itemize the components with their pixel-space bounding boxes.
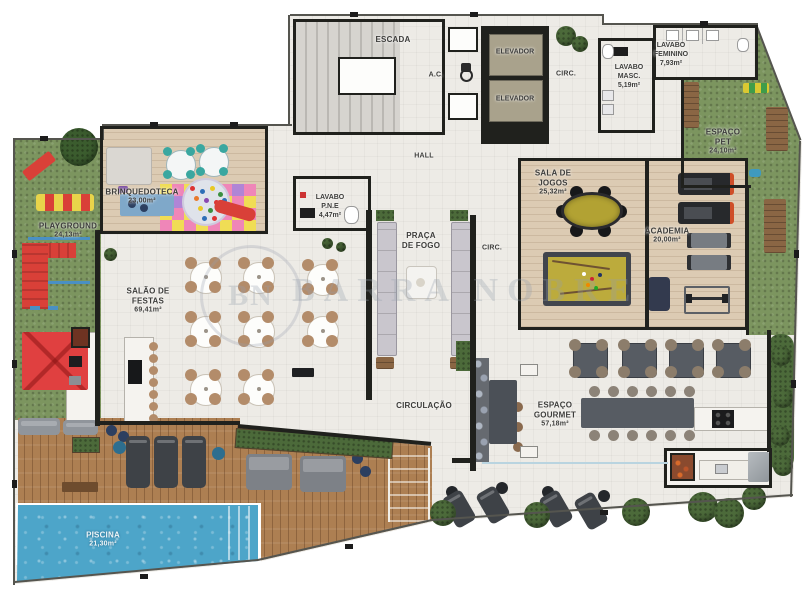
wheelchair-icon <box>460 69 473 82</box>
room-label-sala-de-jogos: SALA DE JOGOS25,32m² <box>535 169 571 198</box>
shrub <box>688 492 718 522</box>
room-label-lavabo-masc: LAVABO MASC.5,19m² <box>615 64 644 90</box>
room-label-praca-de-fogo: PRAÇA DE FOGO <box>402 231 440 251</box>
service-cart <box>520 446 538 458</box>
pool-steps <box>228 506 258 560</box>
deck-sofa <box>18 418 60 435</box>
room-label-elevador-2: ELEVADOR <box>496 96 534 105</box>
column-marker <box>791 380 796 388</box>
column-marker <box>12 360 17 368</box>
kitchenette-sink <box>69 356 82 367</box>
cooktop <box>128 360 142 384</box>
wood-table <box>62 482 98 492</box>
shrub <box>714 498 744 528</box>
gourmet-table <box>716 343 751 378</box>
floor-plan: ESCADA A.C. ELEVADOR ELEVADOR CIRC. HALL… <box>0 0 809 600</box>
room-label-circ-mid: CIRC. <box>482 245 502 254</box>
room-label-academia: ACADEMIA20,00m² <box>645 227 690 246</box>
deck-sofa <box>246 454 292 490</box>
fire-plaza-wall-right <box>470 215 476 471</box>
hedge-tree <box>771 346 791 366</box>
fridge <box>748 452 769 482</box>
room-label-lavabo-pne: LAVABO P.N.E4,47m² <box>316 194 345 220</box>
play-tunnel <box>36 194 94 211</box>
column-marker <box>470 12 478 17</box>
gourmet-wall-right <box>767 330 771 452</box>
tree <box>572 36 588 52</box>
deck-planter <box>72 437 100 453</box>
plant <box>322 238 333 249</box>
pet-toy <box>743 83 769 93</box>
kitchenette-appliance <box>69 376 81 385</box>
sun-lounger <box>154 436 178 488</box>
climbing-frame <box>22 243 48 309</box>
bench <box>292 368 314 377</box>
room-label-piscina: PISCINA21,30m² <box>86 531 120 550</box>
swing-seat <box>48 306 58 310</box>
planter <box>450 210 468 221</box>
gourmet-wall-stub <box>452 458 476 463</box>
sun-lounger <box>182 436 206 488</box>
stairwell-walls <box>293 19 445 135</box>
room-label-ac: A.C. <box>429 72 444 81</box>
bar-stone-wall <box>474 358 489 462</box>
pet-pool <box>749 169 761 177</box>
ac-closet <box>448 27 478 52</box>
gourmet-table <box>669 343 704 378</box>
side-table <box>113 441 126 454</box>
bar-stools <box>149 342 158 351</box>
column-marker <box>600 510 608 515</box>
swing-seat <box>30 306 40 310</box>
garden-bench <box>764 199 786 253</box>
outer-wall <box>290 14 603 16</box>
glass-rail <box>482 462 668 464</box>
hedge-tree <box>770 426 790 446</box>
playroom-walls <box>100 126 268 234</box>
plant <box>104 248 117 261</box>
grill-sink <box>715 464 728 474</box>
planter <box>456 341 470 371</box>
service-cart <box>520 364 538 376</box>
shrub <box>524 502 550 528</box>
room-label-elevador-1: ELEVADOR <box>496 49 534 58</box>
navy-pouf <box>360 466 371 477</box>
room-label-espaco-pet: ESPAÇO PET24,10m² <box>706 128 740 157</box>
column-marker <box>12 250 17 258</box>
room-label-circ-top: CIRC. <box>556 71 576 80</box>
ac-closet <box>448 93 478 120</box>
sun-lounger <box>126 436 150 488</box>
dining-chairs-bottom <box>589 430 600 441</box>
dining-chairs-top <box>589 386 600 397</box>
tree <box>60 128 98 166</box>
plant <box>336 242 346 252</box>
planter-box <box>376 357 394 369</box>
barbecue-grill <box>670 453 695 481</box>
deck-sofa <box>300 456 346 492</box>
party-table <box>307 316 339 348</box>
outer-wall <box>288 15 290 126</box>
column-marker <box>345 544 353 549</box>
deck-steps <box>388 448 430 522</box>
column-marker <box>12 480 17 488</box>
column-marker <box>350 12 358 17</box>
room-label-brinquedoteca: BRINQUEDOTECA23,00m² <box>105 188 178 207</box>
room-label-lavabo-feminino: LAVABO FEMININO7,93m² <box>654 42 688 68</box>
outer-wall <box>13 138 104 140</box>
gourmet-table <box>573 343 608 378</box>
watermark-monogram: BN <box>200 245 302 347</box>
gourmet-table <box>622 343 657 378</box>
room-label-circulacao: CIRCULAÇÃO <box>396 401 452 411</box>
outdoor-pouf <box>598 490 610 502</box>
shrub <box>430 500 456 526</box>
room-label-espaco-gourmet: ESPAÇO GOURMET57,18m² <box>534 401 576 430</box>
column-marker <box>794 250 799 258</box>
hedge-tree <box>773 388 793 408</box>
pet-deck-pad <box>766 107 788 151</box>
column-marker <box>40 136 48 141</box>
column-marker <box>140 574 148 579</box>
party-table <box>243 374 275 406</box>
room-label-salao-de-festas: SALÃO DE FESTAS69,41m² <box>127 287 170 316</box>
party-table <box>190 374 222 406</box>
column-marker <box>700 21 708 26</box>
column-marker <box>230 122 238 127</box>
deck-sofa <box>63 420 98 435</box>
shrub <box>622 498 650 526</box>
navy-pouf <box>106 425 117 436</box>
party-room-wall-bottom <box>97 421 240 425</box>
room-label-escada: ESCADA <box>376 35 411 45</box>
room-label-playground: PLAYGROUND24,13m² <box>39 222 97 241</box>
planter <box>376 210 394 221</box>
side-table <box>212 447 225 460</box>
bar-counter <box>489 380 517 444</box>
fireplace <box>71 327 90 348</box>
dining-table <box>581 398 694 428</box>
column-marker <box>150 122 158 127</box>
gourmet-cooktop <box>712 410 734 428</box>
pet-bench <box>684 82 699 128</box>
party-room-wall-left <box>95 230 100 426</box>
room-label-hall: HALL <box>414 153 433 162</box>
watermark-text: BARRA NOBRE <box>292 272 639 310</box>
